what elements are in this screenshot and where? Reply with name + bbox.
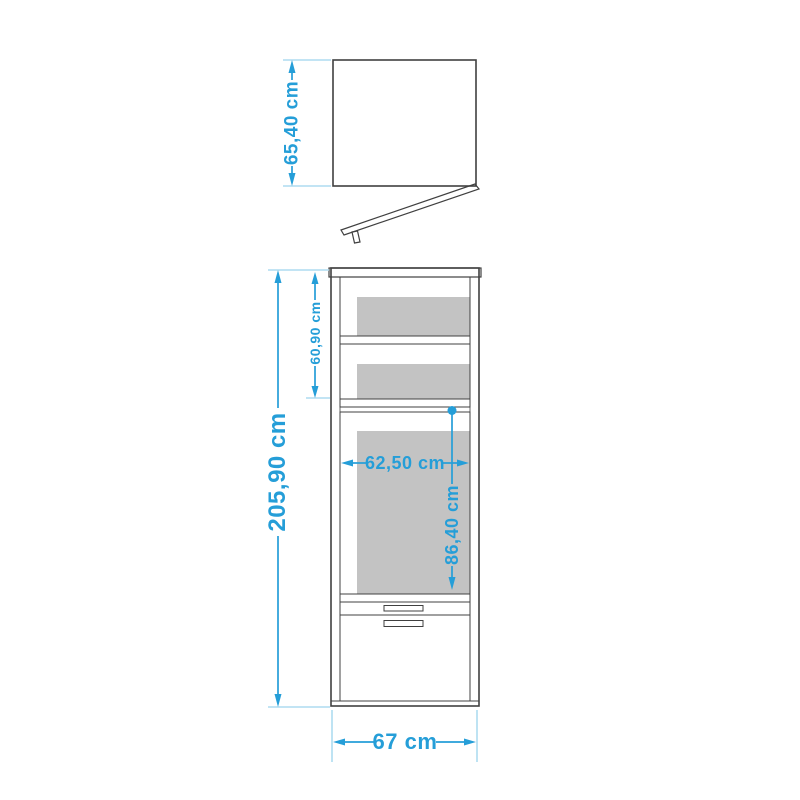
arrow-up-icon [275, 270, 282, 283]
arrow-left-icon [341, 460, 353, 467]
drawer-divider-board [340, 594, 470, 602]
interior-height-label: 86,40 cm [443, 485, 461, 565]
drawer-handle [384, 606, 423, 612]
upper-section-height-label: 60,90 cm [308, 301, 322, 364]
arrow-down-icon [275, 694, 282, 707]
furniture-dimension-diagram: 65,40 cm 205,90 cm 60,90 cm 62,50 cm 86,… [0, 0, 800, 800]
fold-down-flap [341, 184, 479, 235]
flap-peg [352, 231, 360, 243]
upper-compartment-2-back-panel [357, 364, 470, 399]
arrow-down-icon [312, 386, 319, 398]
upper-compartment-1-back-panel [357, 297, 470, 336]
arrow-down-icon [289, 173, 296, 186]
section-divider-board [340, 399, 470, 407]
shelf-board [340, 336, 470, 344]
overall-height-label: 205,90 cm [266, 412, 290, 531]
diagram-geometry [0, 0, 800, 800]
overall-width-label: 67 cm [373, 731, 438, 753]
top-panel-view [333, 60, 479, 243]
arrow-up-icon [312, 272, 319, 284]
cabinet-top-board [329, 268, 481, 277]
arrow-up-icon [289, 60, 296, 73]
interior-width-label: 62,50 cm [365, 454, 445, 472]
top-panel [333, 60, 476, 186]
door-front [340, 615, 470, 701]
arrow-right-icon [464, 739, 476, 746]
top-panel-height-label: 65,40 cm [283, 81, 302, 165]
door-handle [384, 621, 423, 627]
drawer-front [340, 602, 470, 615]
arrow-left-icon [333, 739, 345, 746]
